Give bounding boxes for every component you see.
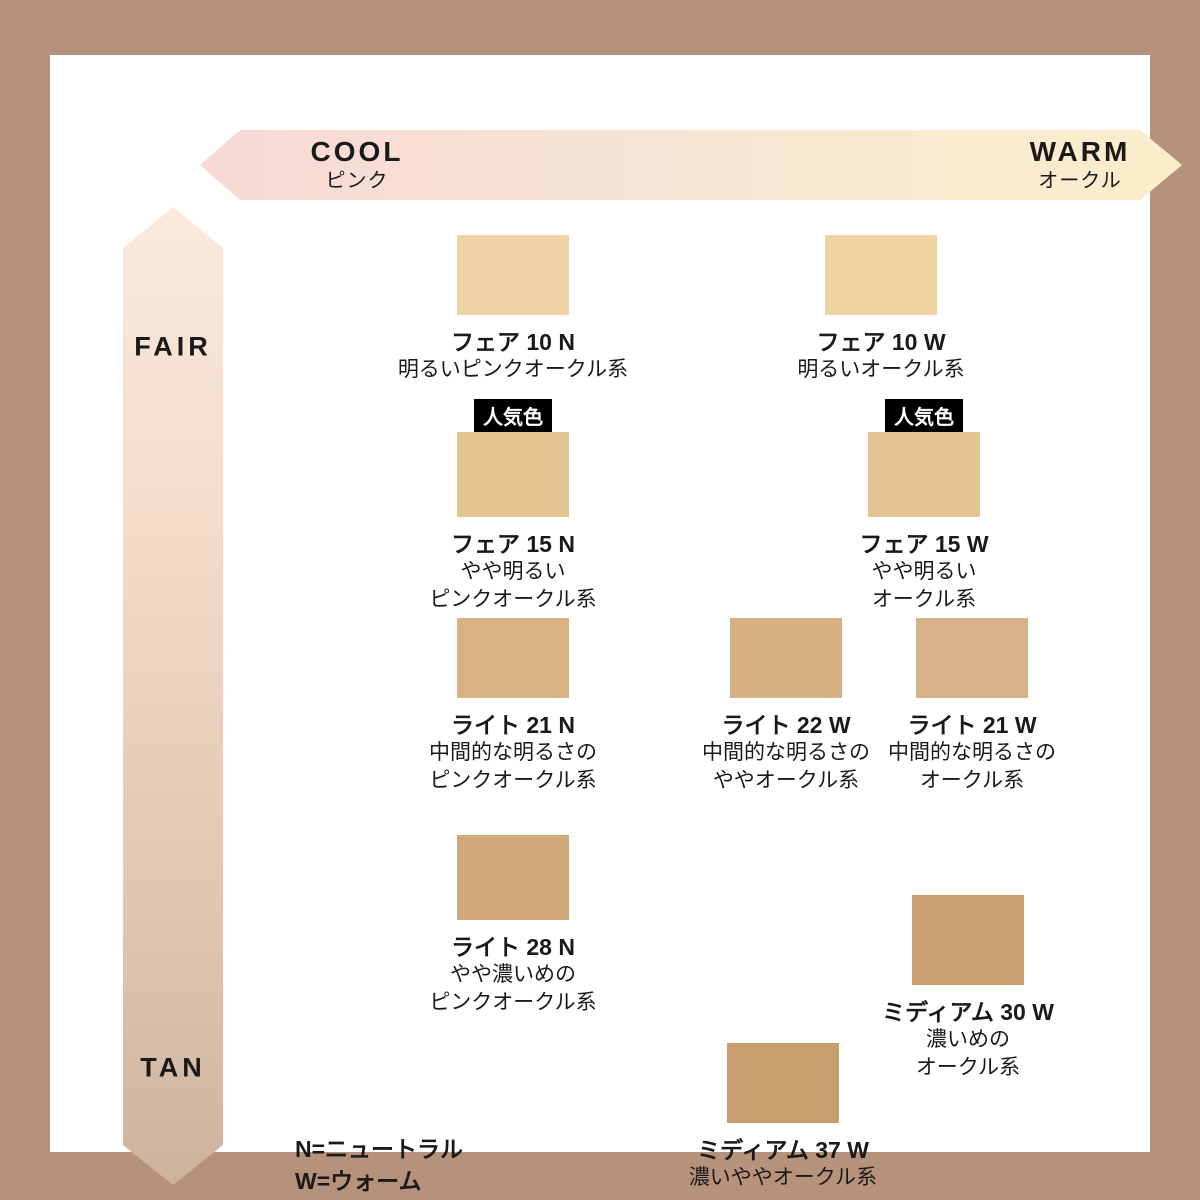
shade-fair-15w: 人気色フェア 15 Wやや明るいオークル系 [792,432,1056,614]
shade-labels: フェア 15 Nやや明るいピンクオークル系 [381,530,645,614]
shade-labels: ライト 28 Nやや濃いめのピンクオークル系 [381,933,645,1017]
shade-fair-10w: フェア 10 W明るいオークル系 [749,235,1013,384]
cool-label: COOL [311,137,404,168]
fair-label: FAIR [134,332,212,363]
shade-name: フェア 15 W [792,530,1056,558]
shade-description-line: やや明るい [792,558,1056,586]
shade-swatch [825,235,937,315]
shade-name: フェア 10 W [749,328,1013,356]
shade-swatch [727,1043,839,1123]
shade-description-line: オークル系 [792,586,1056,614]
shade-description-line: 中間的な明るさの [381,739,645,767]
shade-description-line: やや濃いめの [381,961,645,989]
shade-name: フェア 15 N [381,530,645,558]
cool-axis-label-group: COOL ピンク [311,137,404,192]
shade-swatch [916,618,1028,698]
shade-description-line: 中間的な明るさの [840,739,1104,767]
shade-swatch [868,432,980,517]
shade-swatch [457,235,569,315]
warm-label: WARM [1030,137,1131,168]
shade-swatch [457,835,569,920]
shade-name: ミディアム 37 W [651,1136,915,1164]
shade-swatch [457,432,569,517]
shade-name: ミディアム 30 W [836,998,1100,1026]
shade-description-line: 明るいピンクオークル系 [381,356,645,384]
shade-labels: ライト 21 W中間的な明るさのオークル系 [840,711,1104,795]
shade-medium-37w: ミディアム 37 W濃いややオークル系 [651,1043,915,1192]
shade-name: フェア 10 N [381,328,645,356]
shade-name: ライト 21 N [381,711,645,739]
shade-fair-15n: 人気色フェア 15 Nやや明るいピンクオークル系 [381,432,645,614]
shade-light-28n: ライト 28 Nやや濃いめのピンクオークル系 [381,835,645,1017]
shade-labels: ライト 21 N中間的な明るさのピンクオークル系 [381,711,645,795]
shade-labels: フェア 10 N明るいピンクオークル系 [381,328,645,384]
shade-name: ライト 28 N [381,933,645,961]
shade-description-line: ピンクオークル系 [381,586,645,614]
chart-background: COOL ピンク WARM オークル FAIR TAN フェア 10 N明るいピ… [50,55,1150,1152]
shade-labels: ミディアム 37 W濃いややオークル系 [651,1136,915,1192]
shade-chart: COOL ピンク WARM オークル FAIR TAN フェア 10 N明るいピ… [0,0,1200,1200]
shade-description-line: 明るいオークル系 [749,356,1013,384]
shade-light-21w: ライト 21 W中間的な明るさのオークル系 [840,618,1104,795]
shade-description-line: 濃いややオークル系 [651,1164,915,1192]
shade-fair-10n: フェア 10 N明るいピンクオークル系 [381,235,645,384]
popular-badge: 人気色 [885,399,963,432]
shade-labels: フェア 15 Wやや明るいオークル系 [792,530,1056,614]
shade-description-line: ピンクオークル系 [381,767,645,795]
shade-labels: フェア 10 W明るいオークル系 [749,328,1013,384]
tan-label: TAN [140,1053,206,1084]
legend: N=ニュートラル W=ウォーム [295,1133,463,1197]
shade-description-line: ピンクオークル系 [381,989,645,1017]
shade-swatch [457,618,569,698]
legend-line-warm: W=ウォーム [295,1165,463,1197]
shade-description-line: オークル系 [840,767,1104,795]
popular-badge: 人気色 [474,399,552,432]
shade-swatch [730,618,842,698]
warm-axis-label-group: WARM オークル [1030,137,1131,192]
cool-sublabel: ピンク [311,170,404,192]
shade-name: ライト 21 W [840,711,1104,739]
shade-description-line: やや明るい [381,558,645,586]
shade-light-21n: ライト 21 N中間的な明るさのピンクオークル系 [381,618,645,795]
legend-line-neutral: N=ニュートラル [295,1133,463,1165]
warm-sublabel: オークル [1030,170,1131,192]
shade-swatch [912,895,1024,985]
